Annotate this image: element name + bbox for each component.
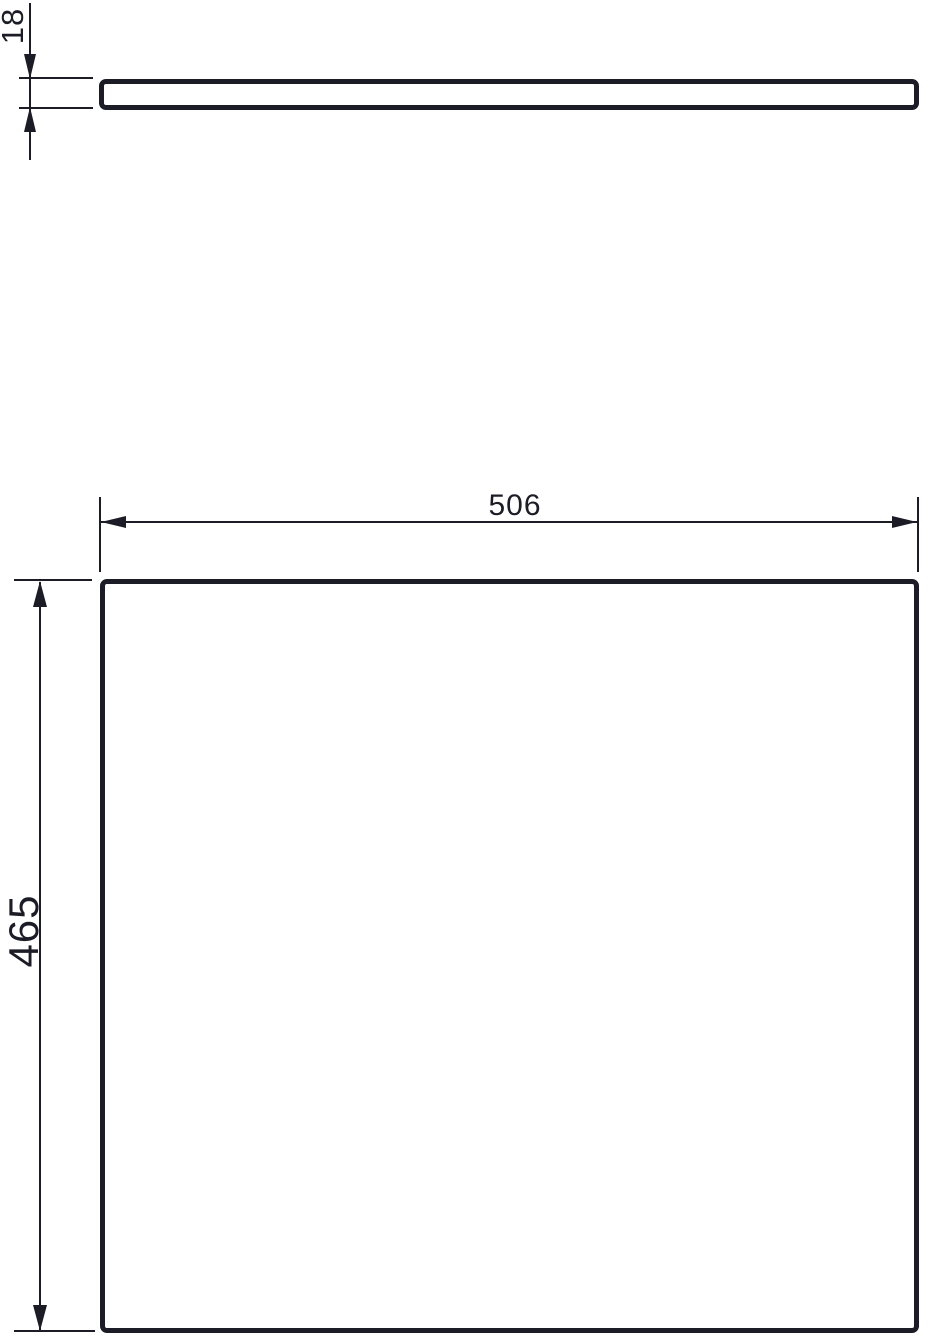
panel-top-view-outline [99, 79, 919, 110]
panel-front-view-outline [100, 579, 919, 1333]
height-extension-line-top [14, 579, 92, 581]
width-extension-line-left [99, 497, 101, 572]
width-extension-line-right [917, 497, 919, 572]
height-arrowhead-up-icon [33, 581, 47, 607]
width-dimension-label: 506 [455, 490, 575, 522]
thickness-dimension-label: 18 [0, 0, 31, 66]
thickness-arrowhead-up-icon [24, 107, 36, 132]
height-extension-line-bottom [14, 1330, 95, 1332]
height-dimension-label: 465 [1, 871, 47, 991]
technical-drawing-canvas: 18 506 465 [0, 0, 931, 1340]
height-arrowhead-down-icon [33, 1305, 47, 1331]
width-arrowhead-left-icon [101, 516, 126, 528]
width-arrowhead-right-icon [892, 516, 917, 528]
